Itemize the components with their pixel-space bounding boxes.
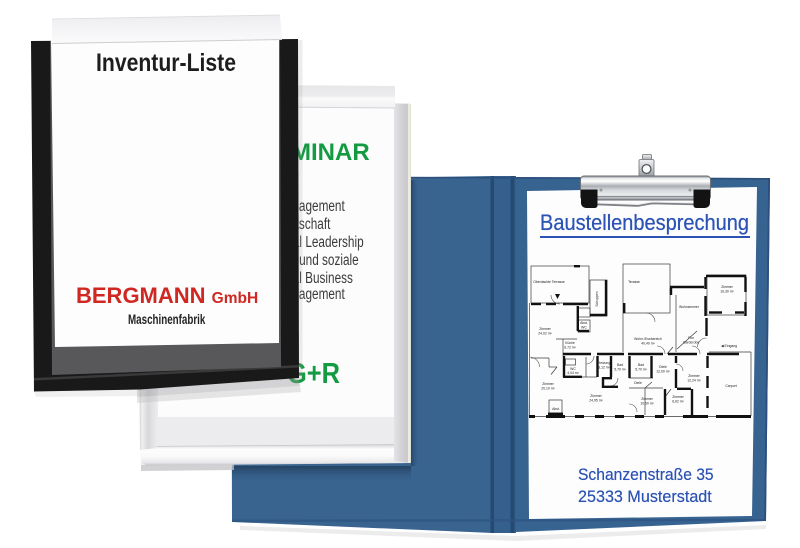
svg-text:24,02 m²: 24,02 m² (538, 332, 552, 336)
svg-text:Schuppen: Schuppen (595, 291, 599, 306)
svg-text:10,50 m²: 10,50 m² (640, 402, 654, 406)
svg-text:20,10 m²: 20,10 m² (541, 387, 555, 391)
svg-text:Wohn-/Essbereich: Wohn-/Essbereich (634, 337, 662, 341)
svg-text:Carport: Carport (725, 384, 736, 388)
svg-text:Zimmer: Zimmer (542, 382, 554, 386)
svg-text:12,24 m²: 12,24 m² (687, 379, 701, 383)
svg-text:24,95 m²: 24,95 m² (589, 399, 603, 403)
svg-text:Wohnzimmer: Wohnzimmer (679, 305, 700, 309)
svg-text:Garderobe: Garderobe (683, 341, 699, 345)
svg-text:WC: WC (581, 326, 587, 330)
svg-text:Abst.: Abst. (552, 407, 560, 411)
svg-text:Terasse: Terasse (628, 280, 640, 284)
svg-text:4,04 m²: 4,04 m² (567, 371, 579, 375)
svg-text:Zimmer: Zimmer (590, 394, 602, 398)
svg-text:Zimmer: Zimmer (641, 397, 653, 401)
svg-text:6,62 m²: 6,62 m² (672, 400, 684, 404)
svg-text:Zimmer: Zimmer (721, 285, 733, 289)
svg-text:Bad: Bad (638, 363, 644, 367)
svg-text:Heizung: Heizung (598, 361, 611, 365)
svg-text:5,70 m²: 5,70 m² (614, 368, 626, 372)
svg-text:Küche: Küche (565, 341, 575, 345)
svg-text:Bad: Bad (617, 363, 623, 367)
svg-text:Oberdachte Terrasse: Oberdachte Terrasse (533, 280, 565, 284)
svg-text:6,72 m²: 6,72 m² (564, 346, 576, 350)
svg-text:40,40 m²: 40,40 m² (641, 342, 655, 346)
svg-text:Abst.: Abst. (580, 321, 588, 325)
svg-text:5,70 m²: 5,70 m² (635, 368, 647, 372)
svg-text:Zimmer: Zimmer (688, 374, 700, 378)
svg-text:3,12 m²: 3,12 m² (598, 366, 610, 370)
svg-text:16,30 m²: 16,30 m² (720, 290, 734, 294)
svg-text:Zimmer: Zimmer (539, 327, 551, 331)
svg-text:Diele: Diele (634, 381, 642, 385)
svg-text:12,00 m²: 12,00 m² (656, 370, 670, 374)
svg-text:Zimmer: Zimmer (672, 395, 684, 399)
svg-text:Flur: Flur (688, 336, 695, 340)
svg-text:◀ Eingang: ◀ Eingang (721, 344, 737, 348)
svg-text:Diele: Diele (659, 365, 667, 369)
